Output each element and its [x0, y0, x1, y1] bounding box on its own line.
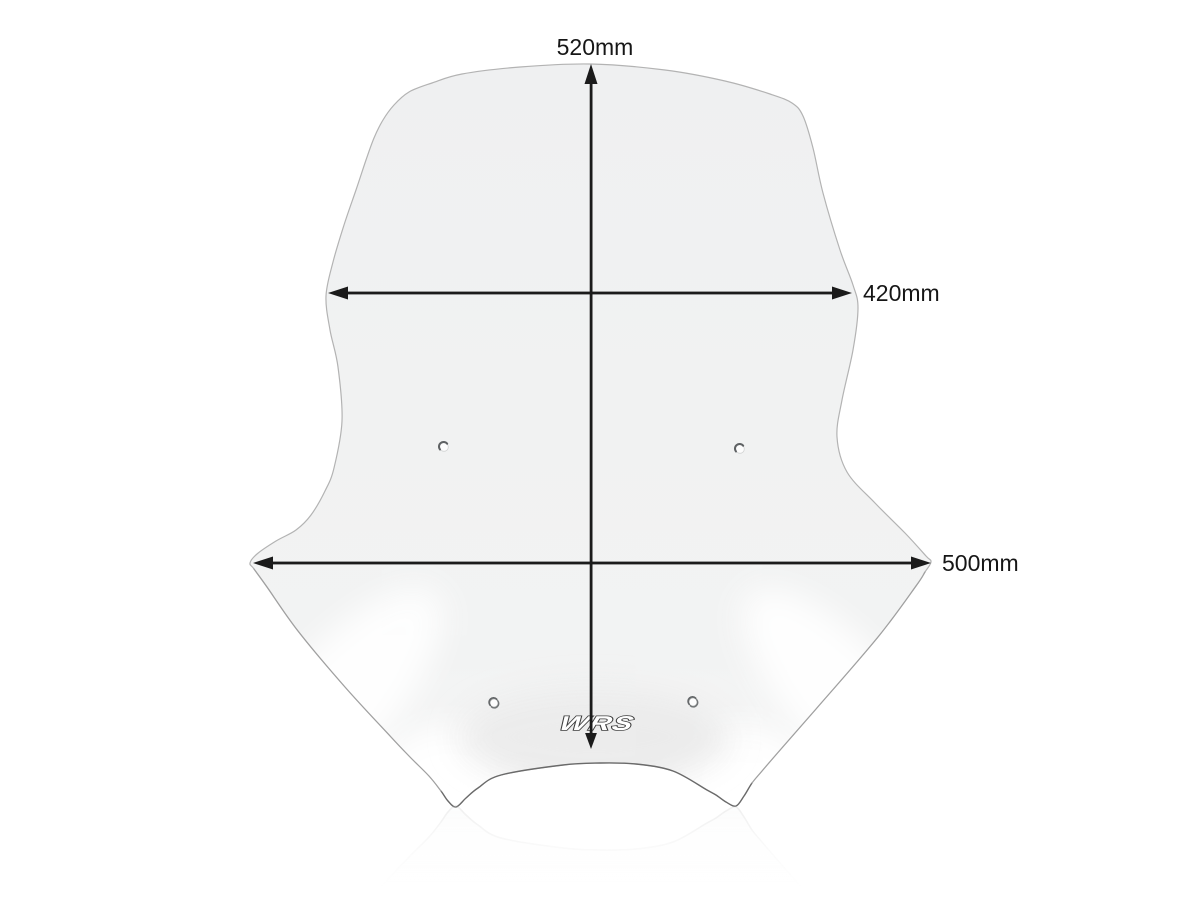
svg-text:WRS: WRS: [556, 712, 637, 734]
svg-text:420mm: 420mm: [863, 280, 940, 306]
svg-text:520mm: 520mm: [557, 34, 634, 60]
svg-text:500mm: 500mm: [942, 550, 1019, 576]
